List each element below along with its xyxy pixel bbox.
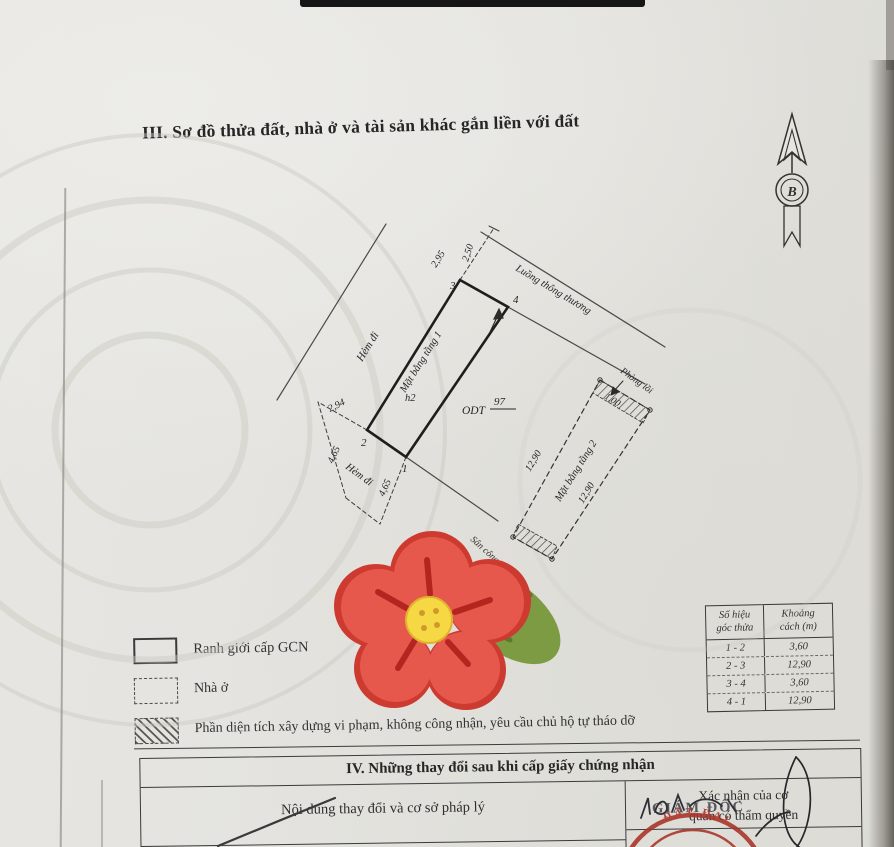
hatched-rectangle-swatch [135,717,179,744]
parcel-diagram: Sân công phơi [277,224,665,579]
dim-floor2-right: 12,90 [576,481,597,506]
balcony-label: Phòng lồi [617,365,655,397]
corner-id-1: 1 [402,463,408,475]
diagram-labels: 3 4 2 1 2,95 2,50 2,94 4,65 4,65 12,90 1… [326,243,655,506]
header-distance: Khoảng cách (m) [764,604,833,639]
page-left-border-line-2 [101,780,103,847]
section4-table: IV. Những thay đổi sau khi cấp giấy chứn… [139,748,862,847]
alley-lower-label: Hẻm đi [342,461,374,489]
street-label: Luồng thông thương [513,263,593,317]
legend-label: Nhà ở [194,681,229,698]
yard-label: Sân công phơi [468,535,516,579]
dim-top-ext: 2,95 [429,249,448,270]
table-body: 1 - 2 3,60 2 - 3 12,90 3 - 4 3,60 4 - 1 … [707,638,834,712]
entrance-arrow [490,309,503,332]
compass-arrow-inner [784,130,800,160]
legend-label: Phần diện tích xây dựng vi phạm, không c… [195,710,845,737]
corner-id-4: 4 [513,294,519,306]
dashed-rectangle-swatch [134,677,178,704]
dim-floor2-left: 12,90 [523,449,544,474]
compass-north-letter: B [786,185,796,200]
floor2-outline [513,380,650,559]
alley-line [277,224,386,400]
header-corner-id: Số hiệu góc thửa [706,605,765,639]
photo-top-edge [300,0,645,7]
boundary-extension [406,457,498,521]
tick-mark [489,226,499,231]
solid-rectangle-swatch [133,637,177,664]
header-underline [626,826,861,830]
section4-columns: Nội dung thay đổi và cơ sở pháp lý Xác n… [141,778,862,847]
compass-tail [784,206,800,246]
corner-mark [550,557,554,561]
street-line-lower [508,307,645,384]
corner-mark [511,535,515,539]
photo-right-edge-shadow-top [886,0,894,70]
dashed-left-of-corner2 [318,402,367,430]
land-type-label: ODT [462,405,487,417]
dim-alley-len1: 4,65 [326,445,343,465]
dim-left-ext: 2,94 [326,397,347,415]
dim-street-setback: 2,50 [460,243,476,263]
balcony-arrow [611,381,623,395]
section3-title: III. Sơ đồ thửa đất, nhà ở và tài sản kh… [142,109,612,143]
corner-mark [648,408,652,412]
dashed-alley-left [318,402,346,498]
dashed-alley-bottom [346,498,380,524]
alley-upper-label: Hẻm đi [354,330,382,364]
dim-alley-len2: 4,65 [377,478,394,498]
photo-right-edge-shadow [868,60,894,847]
dashed-extension-top [460,228,494,280]
street-line-upper [481,232,665,347]
dim-balcony-depth: 1,00 [602,392,622,409]
violation-hatch-balcony [593,380,650,423]
corner-id-2: 2 [361,437,367,449]
north-compass: B [776,114,808,246]
page-left-border-line [60,188,67,847]
corner-id-3: 3 [449,280,456,292]
corner-distance-table: Số hiệu góc thửa Khoảng cách (m) 1 - 2 3… [705,603,835,713]
column-header: Nội dung thay đổi và cơ sở pháp lý [141,797,625,821]
compass-arrow-icon [778,114,806,164]
house-code-label: h2 [405,393,416,404]
table-header-row: Số hiệu góc thửa Khoảng cách (m) [706,604,833,641]
header-underline [141,839,625,847]
scanned-certificate-page: III. Sơ đồ thửa đất, nhà ở và tài sản kh… [0,0,894,847]
table-row: 4 - 1 12,90 [708,692,834,712]
violation-hatch-yard [513,524,557,559]
column-change-content: Nội dung thay đổi và cơ sở pháp lý [141,781,627,847]
legend-label: Ranh giới cấp GCN [193,639,308,658]
corner-mark [598,378,602,382]
parcel-boundary [367,280,508,457]
floor1-label: Mặt bằng tầng 1 [398,330,445,396]
parcel-number-label: 97 [494,396,506,408]
director-label: GIÁM ĐỐC [652,799,745,818]
dashed-alley-right [380,457,406,524]
floor2-label: Mặt bằng tầng 2 [553,438,600,504]
